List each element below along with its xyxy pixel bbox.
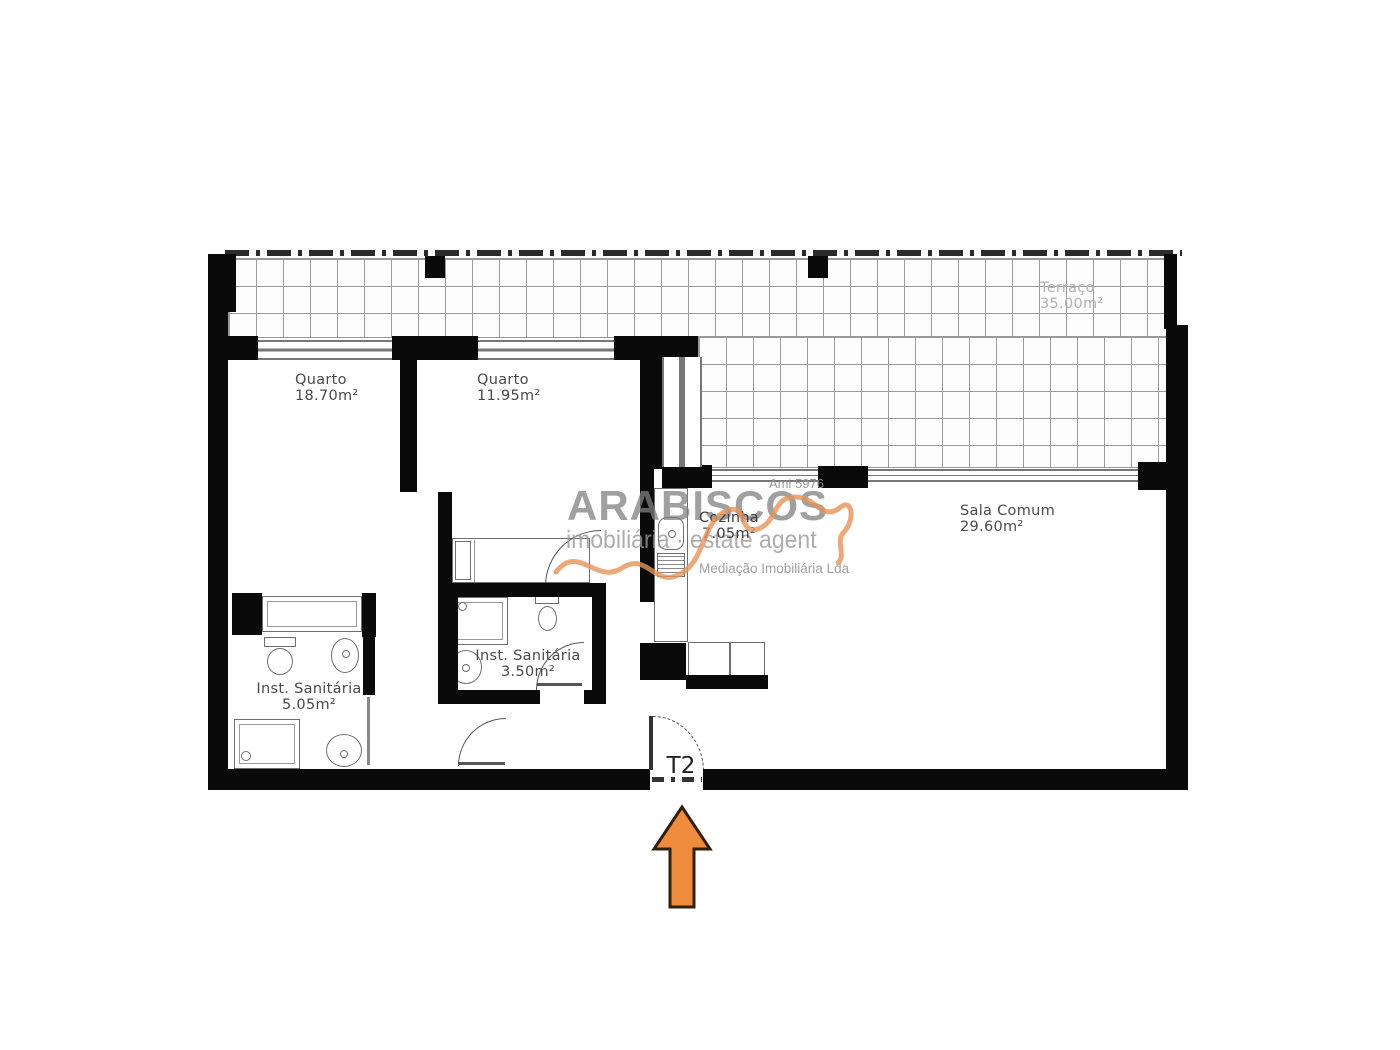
wall <box>640 357 662 469</box>
room-label-living-room: Sala Comum 29.60m² <box>960 503 1055 535</box>
wall <box>208 254 236 312</box>
window <box>478 340 614 360</box>
sink-drain <box>462 664 470 672</box>
wall <box>808 256 828 278</box>
shower <box>234 719 300 769</box>
watermark-squiggle <box>545 480 865 590</box>
bed-pillow <box>455 541 471 580</box>
wall <box>584 690 606 704</box>
door-leaf <box>649 716 653 770</box>
floor-plan: T2 Quarto 18.70m² Quarto 11.95m² Terraço… <box>0 0 1400 1050</box>
room-label-bedroom-2: Quarto 11.95m² <box>477 372 541 404</box>
wall <box>362 593 376 637</box>
wall <box>703 769 1188 790</box>
window <box>662 357 702 467</box>
room-label-bathroom-2: Inst. Sanitária 3.50m² <box>475 648 580 680</box>
window <box>868 469 1138 482</box>
toilet <box>538 606 557 631</box>
door-leaf <box>458 762 505 765</box>
sink-drain <box>340 750 348 758</box>
wall <box>1166 325 1188 790</box>
wall <box>445 583 458 704</box>
wall <box>392 336 478 360</box>
toilet-tank <box>264 637 296 647</box>
stove <box>688 642 730 677</box>
door-swing <box>458 718 506 766</box>
wall <box>1164 254 1177 329</box>
wall <box>208 336 258 360</box>
closet <box>262 596 362 632</box>
shower-drain <box>458 602 467 611</box>
toilet <box>267 648 293 675</box>
wall <box>208 769 650 790</box>
unit-type-label: T2 <box>667 753 696 779</box>
boundary-line <box>225 250 1182 256</box>
wall <box>208 254 228 790</box>
wall <box>592 583 606 704</box>
window <box>258 340 392 360</box>
wall <box>363 635 375 695</box>
shower-drain <box>241 751 251 761</box>
room-label-bathroom-1: Inst. Sanitária 5.05m² <box>256 681 361 713</box>
wall <box>445 690 540 704</box>
entrance-arrow-icon <box>650 803 714 911</box>
wall <box>686 675 768 689</box>
bed-line <box>474 540 475 582</box>
room-label-terrace: Terraço 35.00m² <box>1040 280 1104 312</box>
terrace-tiles-main <box>698 336 1167 468</box>
room-label-bedroom-1: Quarto 18.70m² <box>295 372 359 404</box>
kitchen-counter <box>730 642 765 677</box>
door-leaf <box>537 683 582 686</box>
wall <box>640 643 686 680</box>
wall <box>232 593 262 635</box>
terrace-tiles-strip <box>228 258 1168 338</box>
door-leaf <box>367 697 370 765</box>
wall <box>425 256 445 278</box>
bidet-drain <box>342 650 350 658</box>
wall <box>400 360 417 492</box>
wall <box>1138 462 1168 490</box>
